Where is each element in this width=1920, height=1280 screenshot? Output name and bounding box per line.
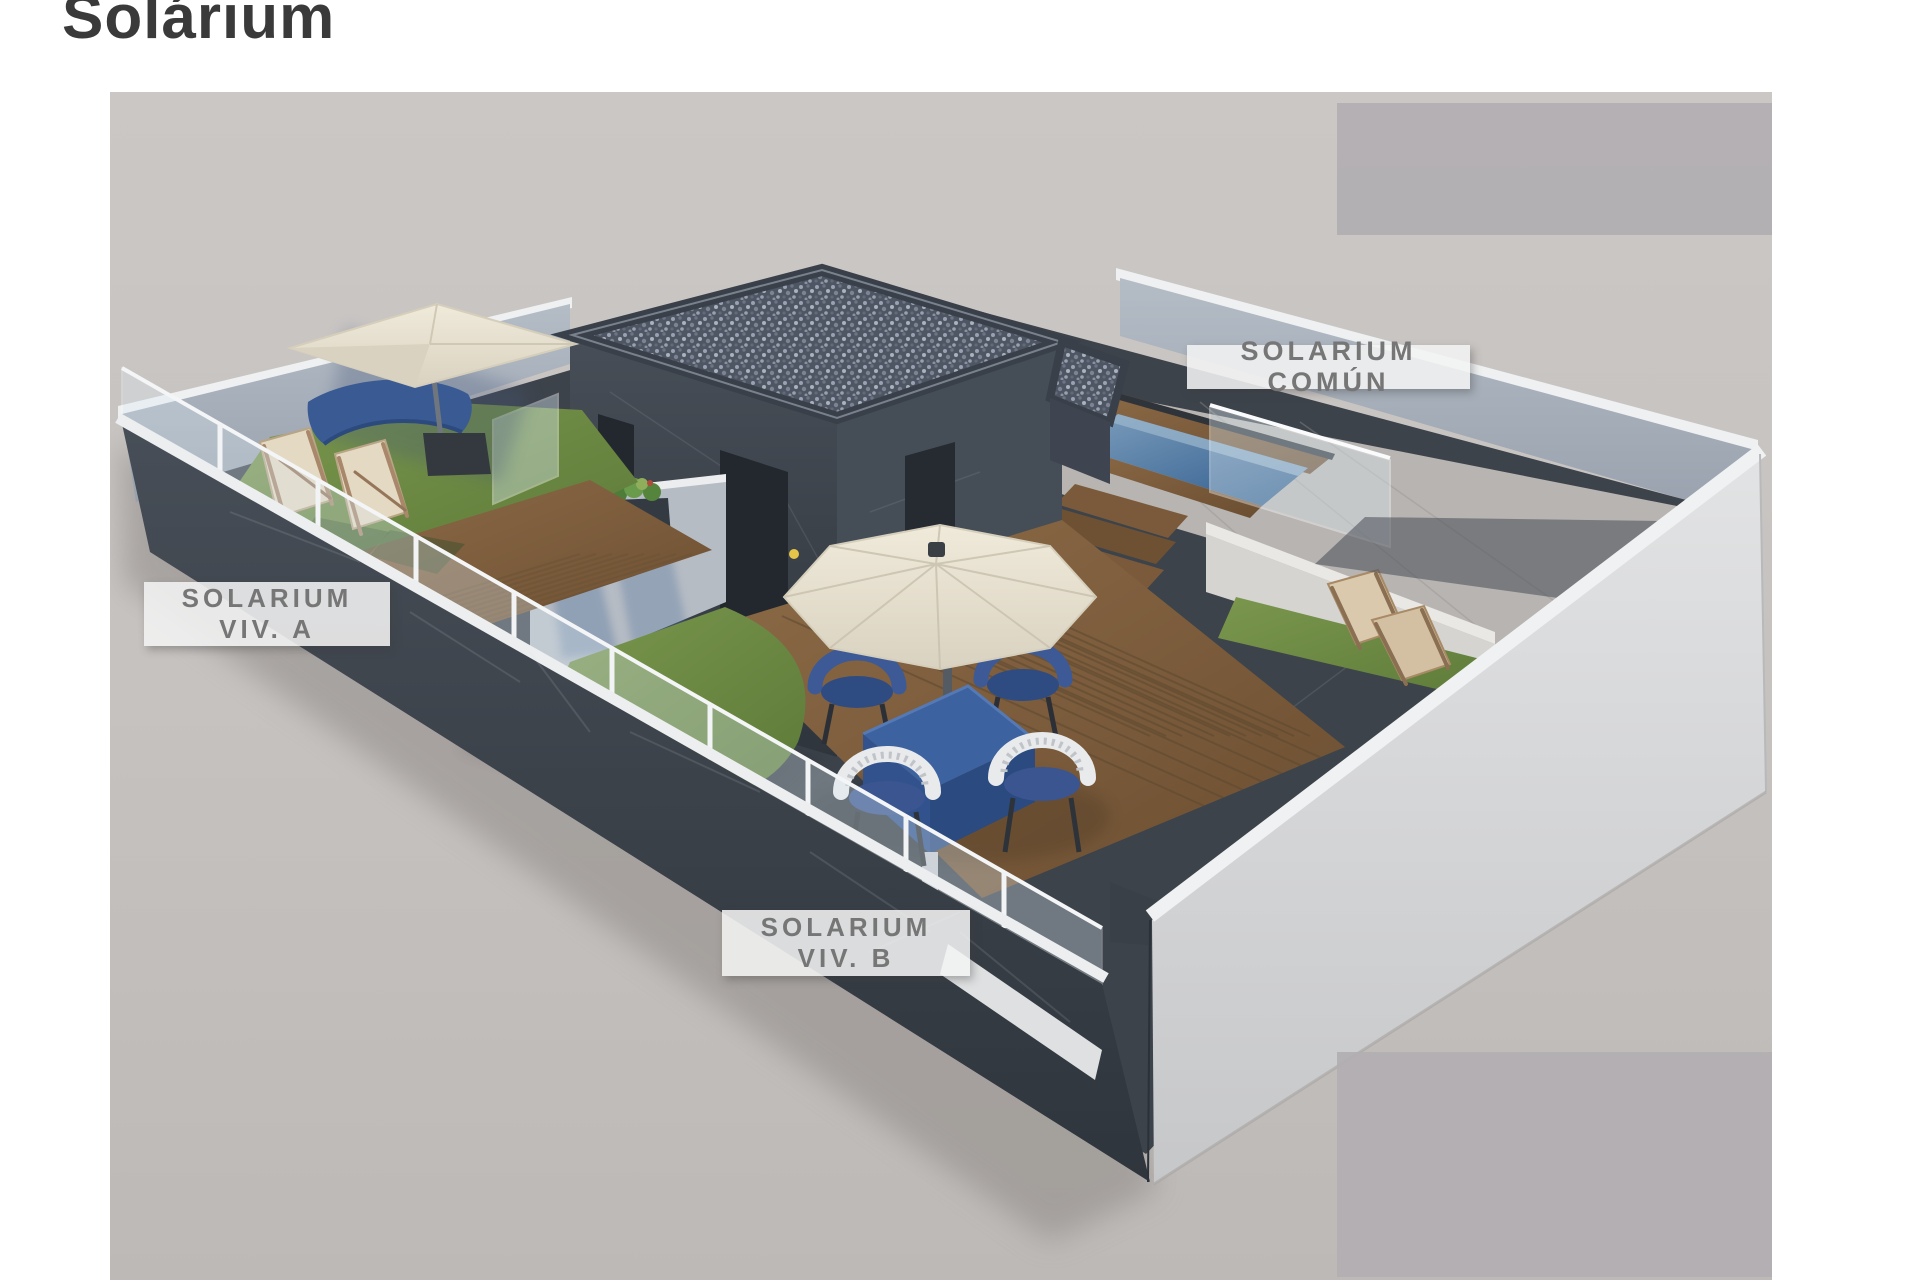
label-text: VIV. B (722, 943, 970, 974)
watermark-box-top (1337, 103, 1772, 235)
umbrella-viv-b (784, 525, 1096, 669)
umbrella-finial (928, 542, 945, 557)
label-text: SOLARIUM (722, 912, 970, 943)
page-title: Solárium (62, 0, 335, 53)
label-text: SOLARIUM (144, 583, 390, 614)
render-photo: SOLARIUM COMÚN SOLARIUM VIV. A SOLARIUM … (110, 92, 1772, 1280)
label-text: SOLARIUM COMÚN (1187, 336, 1470, 398)
umbrella-base-planter (423, 433, 491, 476)
label-solarium-viv-a: SOLARIUM VIV. A (144, 582, 390, 646)
label-text: VIV. A (144, 614, 390, 645)
label-solarium-comun: SOLARIUM COMÚN (1187, 345, 1470, 389)
watermark-box-bottom (1337, 1052, 1772, 1277)
brochure-page: Solárium (0, 0, 1920, 1280)
door-lamp (789, 549, 799, 559)
label-solarium-viv-b: SOLARIUM VIV. B (722, 910, 970, 976)
